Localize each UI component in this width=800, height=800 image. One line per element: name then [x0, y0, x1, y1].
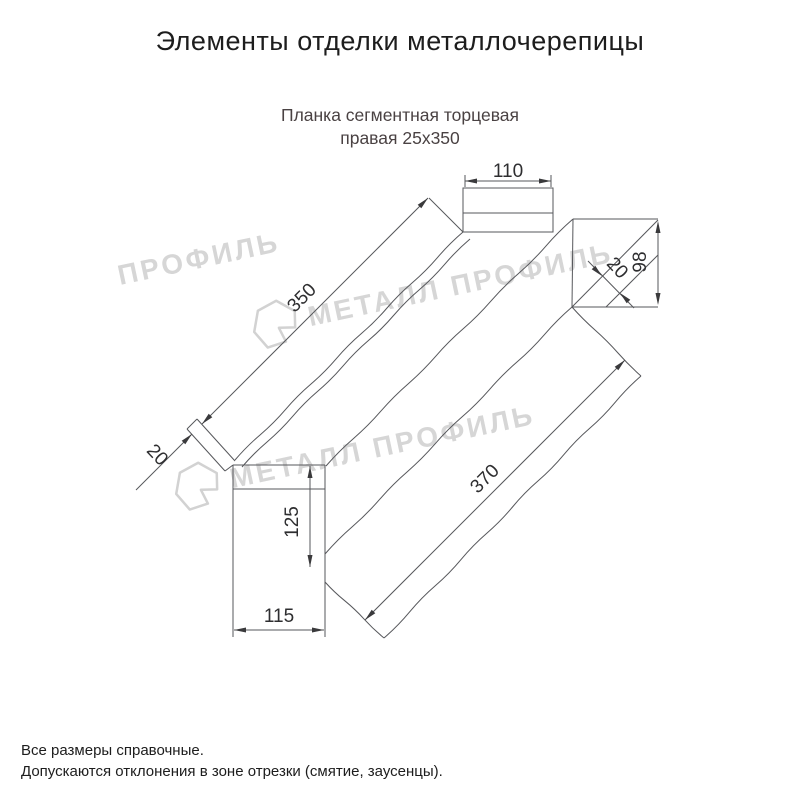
end-cap-left-edge [572, 219, 573, 307]
watermark-fragment: ПРОФИЛЬ [115, 226, 283, 291]
dimension-20-left: 20 [136, 434, 192, 490]
strip-right-end-edge [572, 307, 641, 376]
top-flap-outline [463, 188, 553, 232]
dim-115-label: 115 [264, 606, 294, 627]
dim-125-label: 125 [282, 506, 303, 538]
dim-370-label: 370 [466, 460, 503, 497]
watermark-fragment-text: ПРОФИЛЬ [115, 226, 283, 291]
dim-98-label: 98 [630, 251, 651, 272]
footer-notes: Все размеры справочные. Допускаются откл… [21, 740, 443, 782]
watermark-text: МЕТАЛЛ ПРОФИЛЬ [305, 237, 616, 332]
dimension-115: 115 [234, 606, 324, 633]
metall-profil-logo-icon [171, 459, 223, 511]
footer-note-2: Допускаются отклонения в зоне отрезки (с… [21, 761, 443, 782]
left-flap-edge-1 [197, 419, 235, 461]
dimension-110: 110 [465, 161, 551, 187]
footer-note-1: Все размеры справочные. [21, 740, 443, 761]
dim-20-left-label: 20 [142, 440, 172, 470]
dim-110-label: 110 [493, 161, 523, 182]
left-flap-cap [187, 419, 197, 429]
technical-drawing: ПРОФИЛЬ МЕТАЛЛ ПРОФИЛЬ МЕТАЛЛ ПРОФИЛЬ [0, 0, 800, 800]
dimension-370: 370 [365, 360, 625, 620]
